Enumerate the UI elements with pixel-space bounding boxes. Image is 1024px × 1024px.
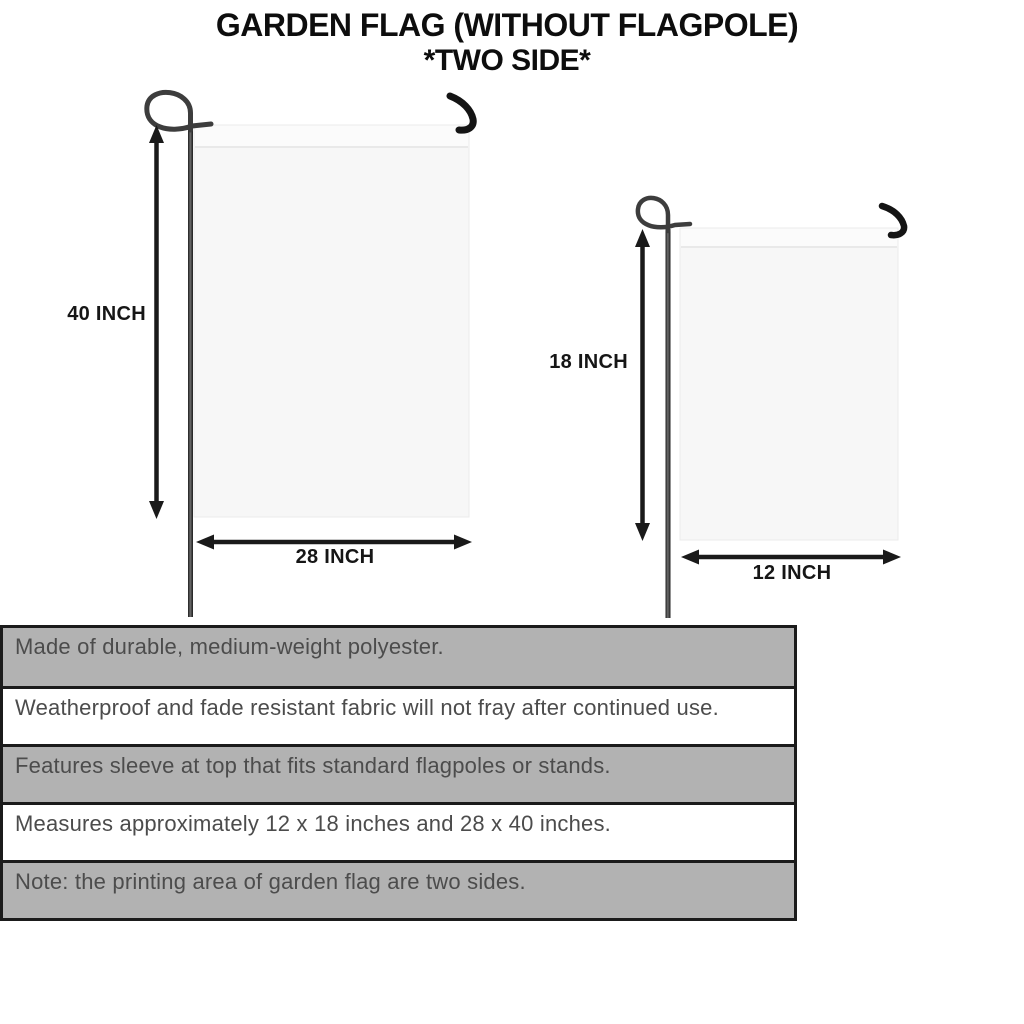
feature-row-text: Features sleeve at top that fits standar… [15, 753, 611, 778]
feature-row-material: Made of durable, medium-weight polyester… [3, 628, 794, 686]
feature-row-text: Made of durable, medium-weight polyester… [15, 634, 444, 659]
large-flag-height-label: 40 INCH [40, 303, 146, 326]
large-flag-height-arrow [149, 125, 164, 519]
small-flag-sleeve [681, 229, 898, 247]
feature-row-text: Weatherproof and fade resistant fabric w… [15, 695, 719, 720]
feature-row-measurements: Measures approximately 12 x 18 inches an… [3, 802, 794, 860]
feature-row-text: Note: the printing area of garden flag a… [15, 869, 526, 894]
small-flag-assembly [635, 198, 904, 618]
small-flag-pole [666, 229, 671, 618]
page-title-line1: GARDEN FLAG (WITHOUT FLAGPOLE) [0, 6, 1014, 44]
page-title-line2: *TWO SIDE* [0, 44, 1014, 78]
large-flag-assembly [147, 92, 473, 617]
feature-row-sleeve: Features sleeve at top that fits standar… [3, 744, 794, 802]
large-flag-width-label: 28 INCH [235, 546, 435, 569]
small-flag-body [680, 228, 898, 540]
large-flag-pole [188, 127, 193, 617]
large-flag-pole-loop-icon [147, 92, 211, 130]
feature-row-note: Note: the printing area of garden flag a… [3, 860, 794, 918]
feature-row-weatherproof: Weatherproof and fade resistant fabric w… [3, 686, 794, 744]
features-table: Made of durable, medium-weight polyester… [0, 625, 797, 921]
large-flag-body [194, 125, 469, 517]
small-flag-height-arrow [635, 229, 650, 541]
page-title: GARDEN FLAG (WITHOUT FLAGPOLE) *TWO SIDE… [0, 6, 1014, 78]
large-flag-sleeve [195, 126, 469, 147]
page-root: { "title": { "line1": "GARDEN FLAG (WITH… [0, 0, 1024, 1024]
small-flag-width-label: 12 INCH [692, 562, 892, 585]
small-flag-height-label: 18 INCH [522, 351, 628, 374]
small-flag-pole-loop-icon [638, 198, 690, 231]
feature-row-text: Measures approximately 12 x 18 inches an… [15, 811, 611, 836]
